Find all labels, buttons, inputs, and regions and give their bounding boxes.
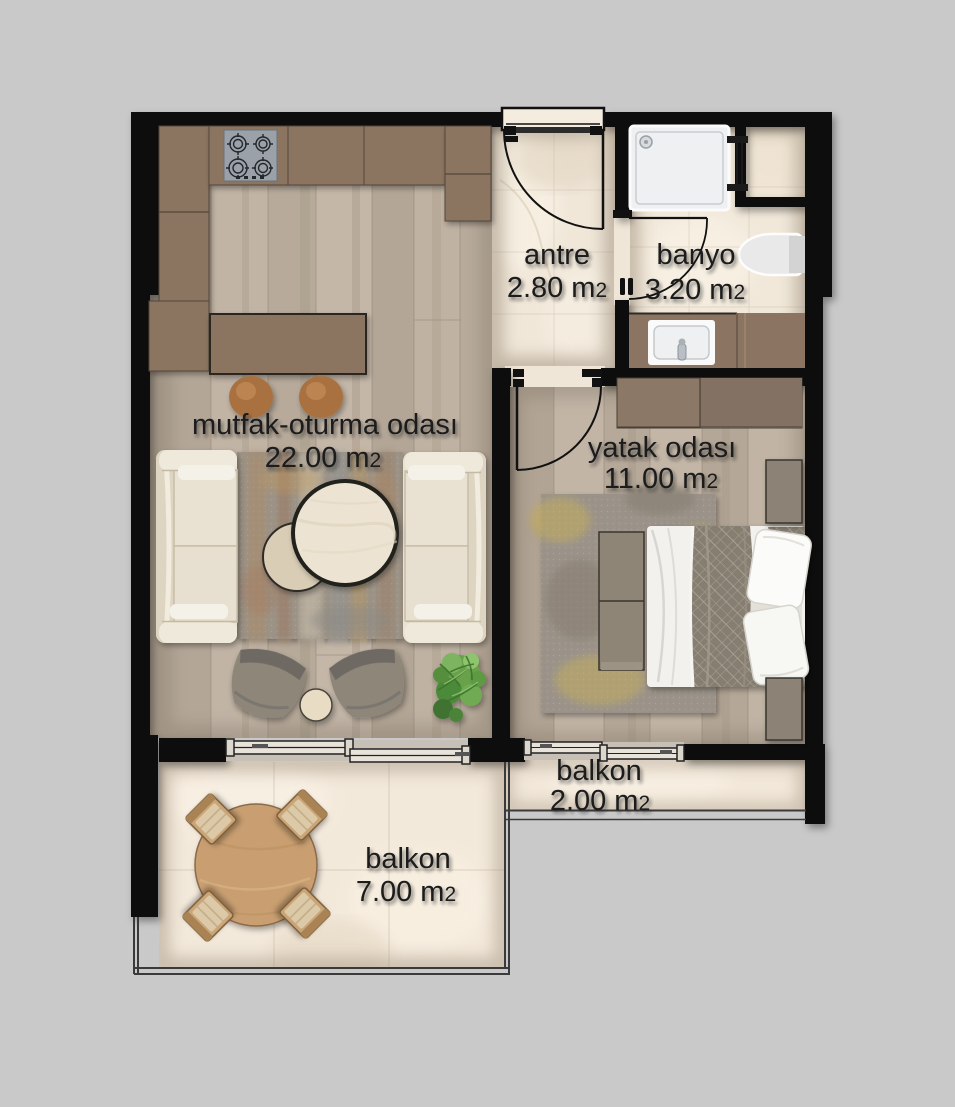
- svg-text:2.00 m2: 2.00 m2: [550, 785, 650, 817]
- svg-text:3.20 m2: 3.20 m2: [645, 274, 745, 306]
- svg-text:2.80 m2: 2.80 m2: [507, 272, 607, 304]
- svg-text:22.00 m2: 22.00 m2: [265, 442, 381, 474]
- svg-text:balkon: balkon: [365, 843, 450, 875]
- svg-text:balkon: balkon: [556, 755, 641, 787]
- svg-text:mutfak-oturma odası: mutfak-oturma odası: [192, 409, 458, 441]
- svg-text:banyo: banyo: [656, 239, 735, 271]
- svg-text:yatak odası: yatak odası: [588, 432, 736, 464]
- svg-text:7.00 m2: 7.00 m2: [356, 876, 456, 908]
- svg-text:11.00 m2: 11.00 m2: [604, 463, 718, 495]
- svg-text:antre: antre: [524, 239, 590, 271]
